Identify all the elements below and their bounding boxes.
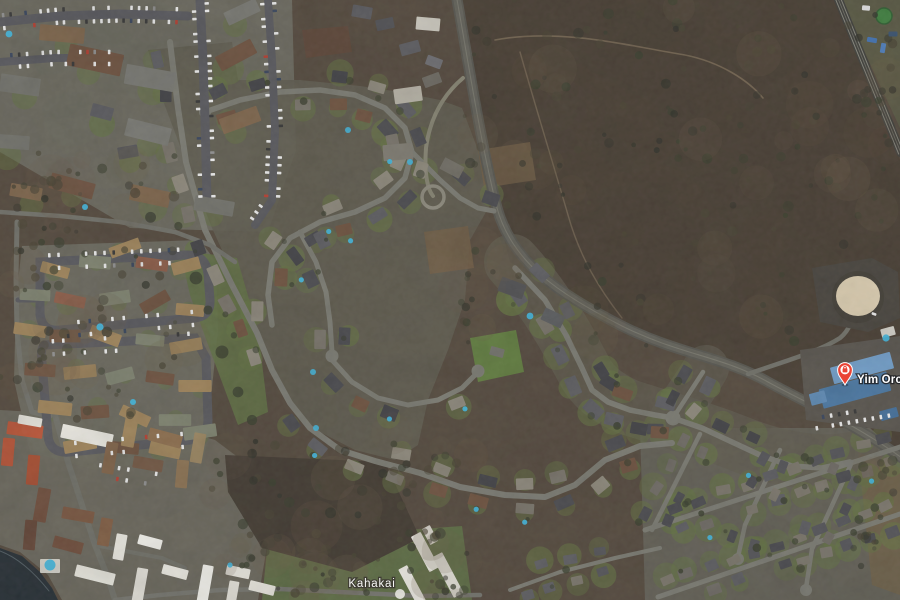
road-label-kahakai: Kahakai — [348, 578, 395, 590]
poi-pin[interactable] — [838, 363, 853, 387]
map-overlay: Kahakai Yim Orch — [0, 0, 900, 600]
poi-label-yim[interactable]: Yim Orch — [857, 374, 900, 386]
map-viewport[interactable]: Kahakai Yim Orch — [0, 0, 900, 600]
